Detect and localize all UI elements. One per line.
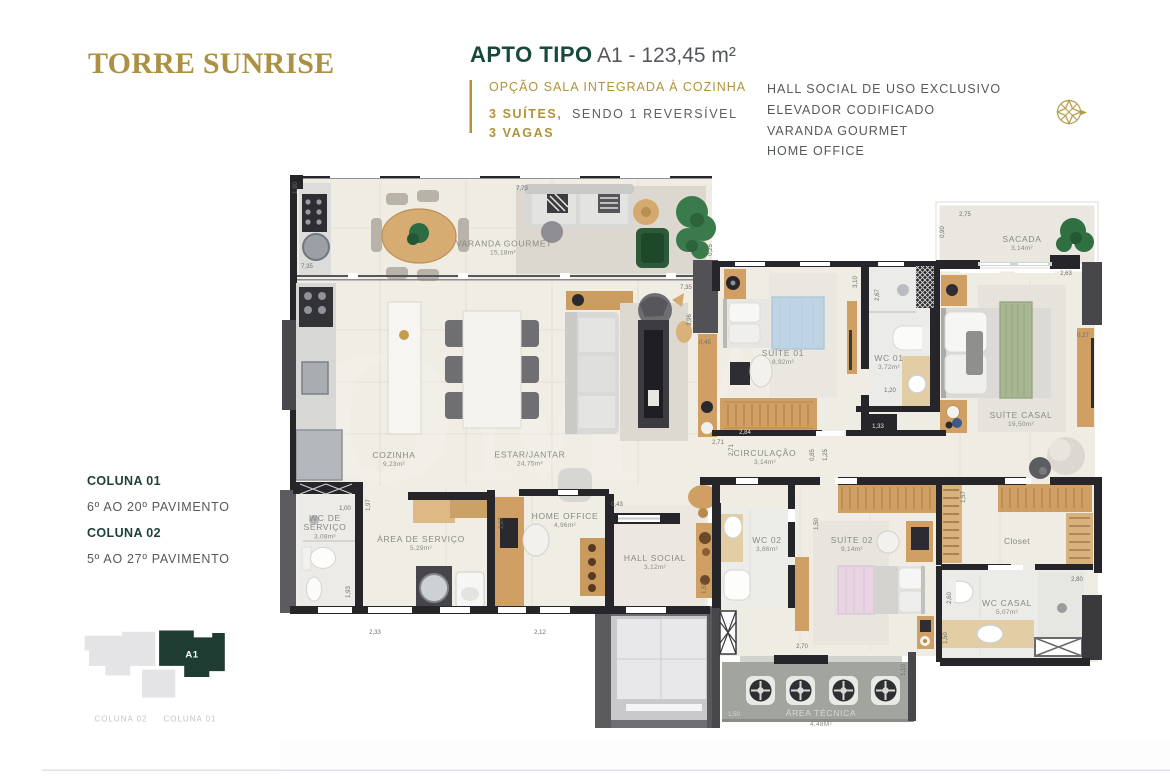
svg-text:2,67: 2,67 [875, 289, 881, 301]
svg-text:1,20: 1,20 [884, 388, 896, 394]
svg-text:2,07: 2,07 [499, 517, 505, 529]
svg-text:3,12m²: 3,12m² [644, 564, 667, 571]
svg-text:3 SUÍTES,: 3 SUÍTES, [489, 106, 562, 121]
svg-text:SUÍTE 01: SUÍTE 01 [762, 348, 804, 358]
svg-text:1,93: 1,93 [346, 586, 352, 598]
svg-text:1,57: 1,57 [702, 582, 708, 594]
svg-text:3,86m²: 3,86m² [756, 546, 779, 553]
svg-text:2,63: 2,63 [1060, 271, 1072, 277]
svg-text:SENDO 1 REVERSÍVEL: SENDO 1 REVERSÍVEL [572, 106, 738, 121]
svg-text:4,96m²: 4,96m² [554, 522, 577, 529]
svg-text:1,97: 1,97 [366, 499, 372, 511]
svg-text:ÁREA DE SERVIÇO: ÁREA DE SERVIÇO [377, 534, 465, 544]
svg-text:2,33: 2,33 [369, 630, 381, 636]
svg-text:OPÇÃO SALA INTEGRADA À COZINHA: OPÇÃO SALA INTEGRADA À COZINHA [489, 79, 746, 94]
svg-text:2,60: 2,60 [947, 592, 953, 604]
svg-text:9,14m²: 9,14m² [841, 546, 864, 553]
svg-text:A1: A1 [185, 650, 198, 661]
svg-text:COLUNA 01: COLUNA 01 [163, 715, 216, 724]
svg-text:5º AO 27º PAVIMENTO: 5º AO 27º PAVIMENTO [87, 552, 230, 566]
svg-text:ELEVADOR CODIFICADO: ELEVADOR CODIFICADO [767, 103, 935, 117]
svg-text:1,50: 1,50 [814, 518, 820, 530]
svg-text:0,25: 0,25 [708, 244, 714, 256]
svg-text:2,84: 2,84 [739, 430, 751, 436]
svg-text:5,29m²: 5,29m² [410, 545, 433, 552]
svg-text:8,92m²: 8,92m² [772, 359, 795, 366]
svg-text:Closet: Closet [1004, 536, 1030, 546]
svg-text:19,50m²: 19,50m² [1008, 421, 1034, 428]
svg-text:0,43: 0,43 [611, 502, 623, 508]
svg-text:1,50: 1,50 [728, 712, 740, 718]
svg-text:1,10: 1,10 [901, 664, 907, 676]
svg-text:ÁREA TÉCNICA: ÁREA TÉCNICA [786, 708, 857, 718]
svg-text:HOME OFFICE: HOME OFFICE [767, 144, 865, 158]
svg-text:SERVIÇO: SERVIÇO [303, 522, 346, 532]
svg-text:APTO TIPO: APTO TIPO [470, 42, 593, 67]
svg-text:7,35: 7,35 [301, 264, 313, 270]
svg-text:COLUNA 02: COLUNA 02 [94, 715, 147, 724]
svg-text:ESTAR/JANTAR: ESTAR/JANTAR [495, 450, 566, 460]
svg-text:24,75m²: 24,75m² [517, 461, 543, 468]
svg-text:2,75: 2,75 [959, 212, 971, 218]
svg-text:SUÍTE 02: SUÍTE 02 [831, 535, 873, 545]
svg-text:7,73: 7,73 [516, 186, 528, 192]
svg-text:SUÍTE CASAL: SUÍTE CASAL [990, 410, 1053, 420]
svg-text:1,57: 1,57 [961, 491, 967, 503]
svg-text:1,00: 1,00 [339, 506, 351, 512]
svg-text:WC 01: WC 01 [874, 353, 903, 363]
svg-text:2,71: 2,71 [729, 444, 735, 456]
svg-text:2,12: 2,12 [534, 630, 546, 636]
svg-text:2,80: 2,80 [1071, 577, 1083, 583]
svg-text:A1 - 123,45 m²: A1 - 123,45 m² [597, 44, 736, 67]
svg-text:TORRE SUNRISE: TORRE SUNRISE [88, 47, 334, 80]
svg-text:3,96: 3,96 [687, 314, 693, 326]
svg-text:HOME OFFICE: HOME OFFICE [532, 511, 599, 521]
svg-text:1,25: 1,25 [823, 449, 829, 461]
svg-text:7,35: 7,35 [680, 285, 692, 291]
svg-text:VARANDA GOURMET: VARANDA GOURMET [767, 124, 908, 138]
svg-text:5,07m²: 5,07m² [996, 609, 1019, 616]
svg-text:1,33: 1,33 [872, 424, 884, 430]
svg-text:3,14m²: 3,14m² [1011, 245, 1034, 252]
svg-text:CIRCULAÇÃO: CIRCULAÇÃO [734, 448, 797, 458]
svg-text:3,14m²: 3,14m² [754, 459, 777, 466]
svg-text:9,23m²: 9,23m² [383, 461, 406, 468]
svg-text:HALL SOCIAL DE USO EXCLUSIVO: HALL SOCIAL DE USO EXCLUSIVO [767, 82, 1001, 96]
svg-text:3,08m²: 3,08m² [314, 534, 337, 541]
svg-text:6º AO 20º PAVIMENTO: 6º AO 20º PAVIMENTO [87, 500, 230, 514]
svg-text:3 VAGAS: 3 VAGAS [489, 126, 554, 140]
svg-text:0,27: 0,27 [1077, 333, 1089, 339]
svg-text:WC CASAL: WC CASAL [982, 598, 1032, 608]
svg-text:15,18m²: 15,18m² [490, 250, 516, 257]
svg-text:VARANDA GOURMET: VARANDA GOURMET [456, 239, 552, 249]
svg-text:3,72m²: 3,72m² [878, 364, 901, 371]
svg-text:1,80: 1,80 [293, 182, 299, 194]
svg-text:COLUNA 02: COLUNA 02 [87, 526, 161, 540]
svg-text:3,10: 3,10 [853, 276, 859, 288]
svg-text:2,70: 2,70 [796, 644, 808, 650]
svg-text:2,71: 2,71 [712, 440, 724, 446]
svg-text:SACADA: SACADA [1002, 234, 1041, 244]
svg-text:COLUNA 01: COLUNA 01 [87, 474, 161, 488]
svg-text:4,48M²: 4,48M² [810, 721, 833, 728]
svg-text:0,85: 0,85 [810, 449, 816, 461]
svg-text:HALL SOCIAL: HALL SOCIAL [624, 553, 686, 563]
svg-text:COZINHA: COZINHA [372, 450, 415, 460]
svg-text:WC 02: WC 02 [752, 535, 781, 545]
svg-text:0,45: 0,45 [699, 340, 711, 346]
svg-text:1,50: 1,50 [943, 632, 949, 644]
svg-text:0,90: 0,90 [940, 226, 946, 238]
